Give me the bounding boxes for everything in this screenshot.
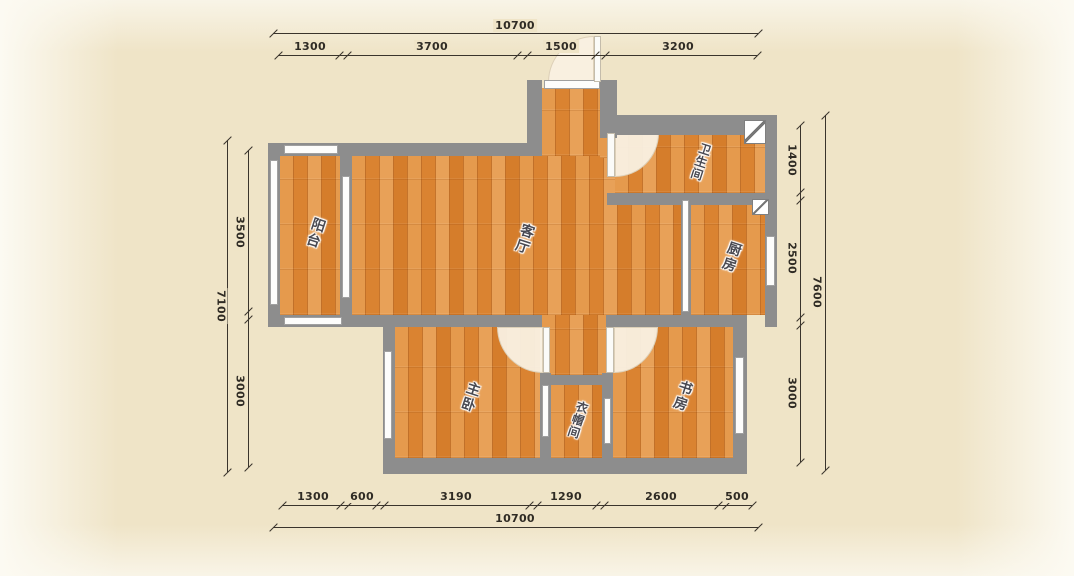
dimension-label: 3000 [234,373,247,409]
dimension-label: 2600 [643,490,679,503]
dimension-line [273,527,758,528]
dimension-line [273,33,758,34]
window [735,357,744,434]
study-door-leaf [606,327,614,373]
dimension-line [800,125,801,462]
dimension-label: 7100 [215,288,228,324]
dimension-label: 1400 [786,142,799,178]
wall [527,80,542,150]
dimension-label: 10700 [493,19,537,32]
dimension-label: 1500 [543,40,579,53]
kitchen-sink-icon [752,199,769,215]
bathroom-door-leaf [607,133,615,177]
dimension-label: 2500 [786,240,799,276]
dimension-label: 3500 [234,214,247,250]
dimension-label: 3190 [438,490,474,503]
dimension-label: 1290 [548,490,584,503]
floor-entry [542,88,600,156]
dimension-label: 3700 [414,40,450,53]
entry-threshold [544,80,600,89]
window [766,236,775,286]
window [270,160,278,305]
corner-window-icon [744,120,766,144]
window [384,351,392,439]
entry-door-leaf [594,36,601,82]
kitchen-sliding-door [682,200,689,312]
dimension-label: 500 [723,490,751,503]
dimension-label: 1300 [295,490,331,503]
dimension-label: 3000 [786,375,799,411]
dimension-label: 600 [348,490,376,503]
wall [540,375,613,385]
bedroom-door-leaf [543,327,550,373]
wall [383,458,747,474]
cloakroom-sliding-door [542,385,549,437]
dimension-line [825,115,826,470]
dimension-line [282,505,752,506]
window [284,317,342,325]
dimension-label: 10700 [493,512,537,525]
floor-corridor [542,315,606,375]
dimension-label: 7600 [811,274,824,310]
window [284,145,338,154]
cloakroom-sliding-door [604,398,611,444]
dimension-label: 1300 [292,40,328,53]
window [342,176,350,298]
wall [606,315,747,327]
dimension-label: 3200 [660,40,696,53]
wall [765,115,777,327]
floor-plan-canvas: 阳台 客厅 卫生间 厨房 主卧 衣帽间 书房 [0,0,1074,576]
